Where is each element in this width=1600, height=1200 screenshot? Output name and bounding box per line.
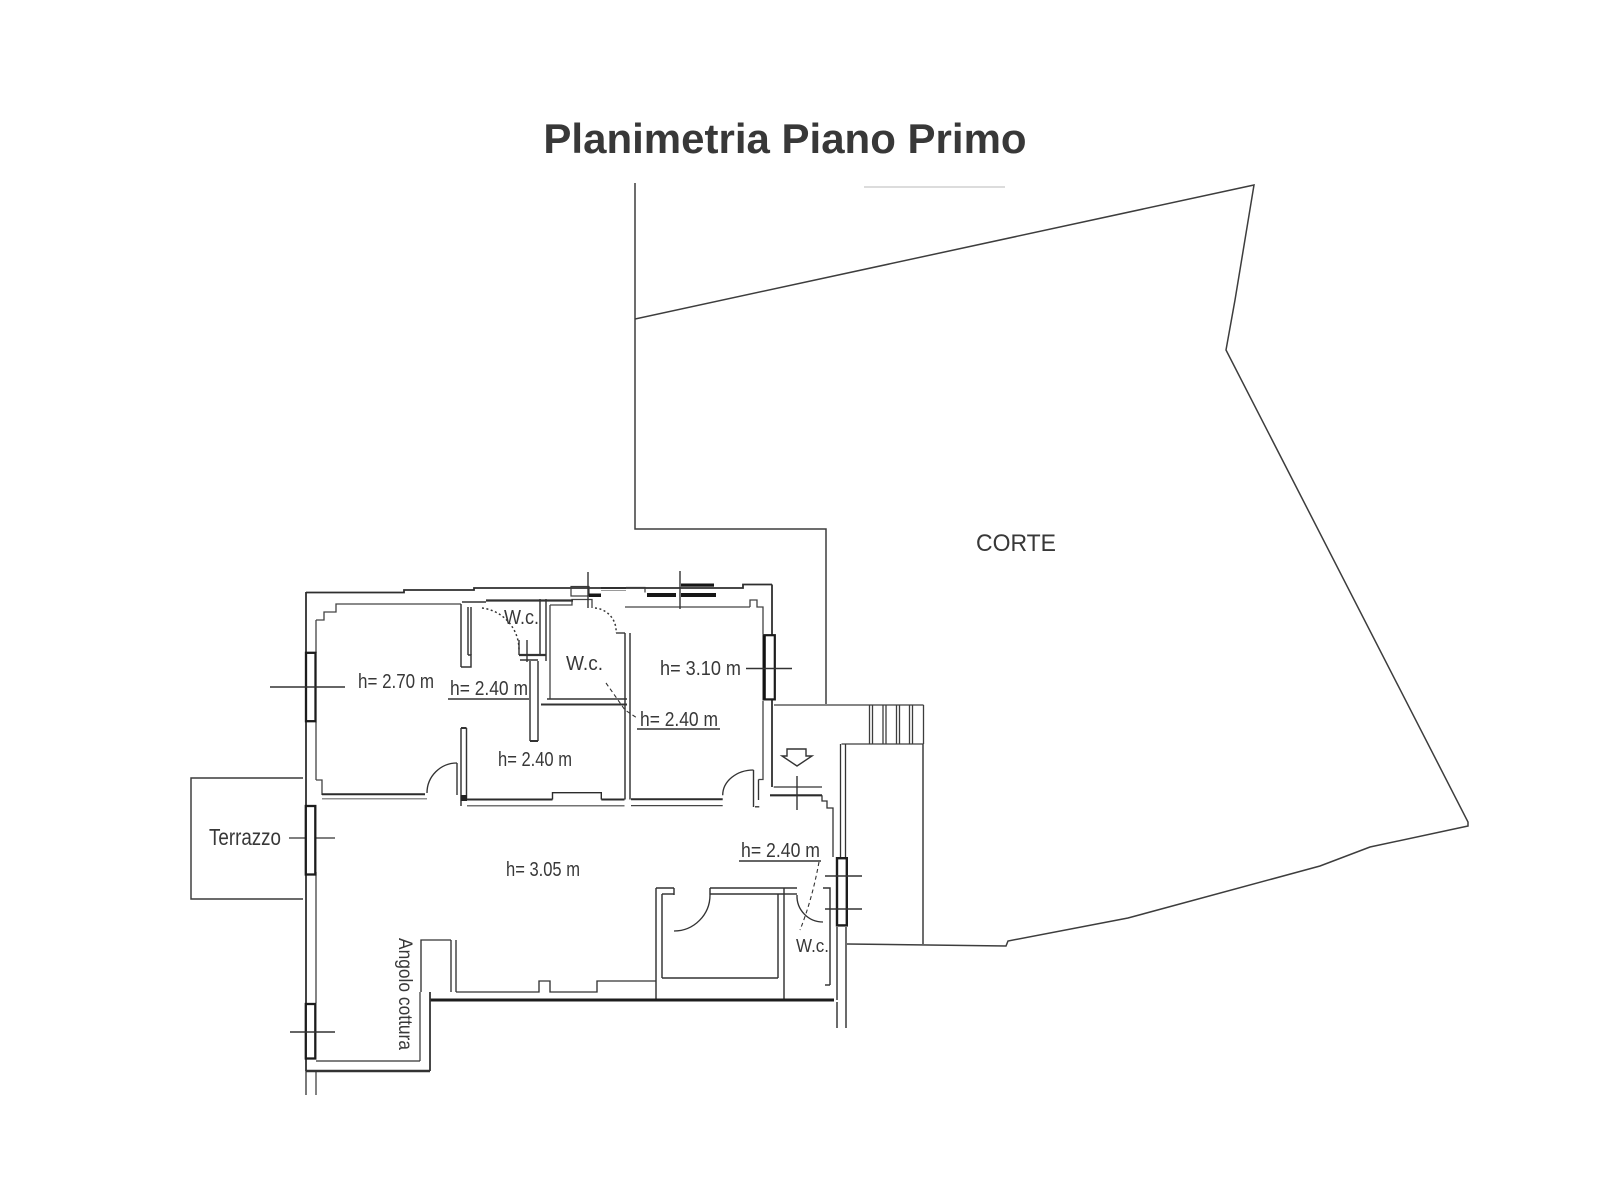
svg-text:Angolo cottura: Angolo cottura <box>394 938 415 1050</box>
svg-text:W.c.: W.c. <box>566 653 603 675</box>
svg-text:h= 3.05 m: h= 3.05 m <box>506 859 580 881</box>
svg-text:W.c.: W.c. <box>796 936 829 956</box>
svg-text:h= 2.40 m: h= 2.40 m <box>741 840 820 862</box>
svg-text:h= 2.40 m: h= 2.40 m <box>450 678 528 700</box>
svg-text:h= 3.10 m: h= 3.10 m <box>660 658 741 680</box>
svg-text:Planimetria Piano Primo: Planimetria Piano Primo <box>543 115 1026 162</box>
svg-text:h= 2.40 m: h= 2.40 m <box>640 709 718 731</box>
svg-text:h= 2.70 m: h= 2.70 m <box>358 671 434 693</box>
svg-text:h= 2.40 m: h= 2.40 m <box>498 749 572 771</box>
svg-text:Terrazzo: Terrazzo <box>209 824 281 850</box>
svg-text:W.c.: W.c. <box>504 607 539 629</box>
svg-text:CORTE: CORTE <box>976 530 1056 557</box>
